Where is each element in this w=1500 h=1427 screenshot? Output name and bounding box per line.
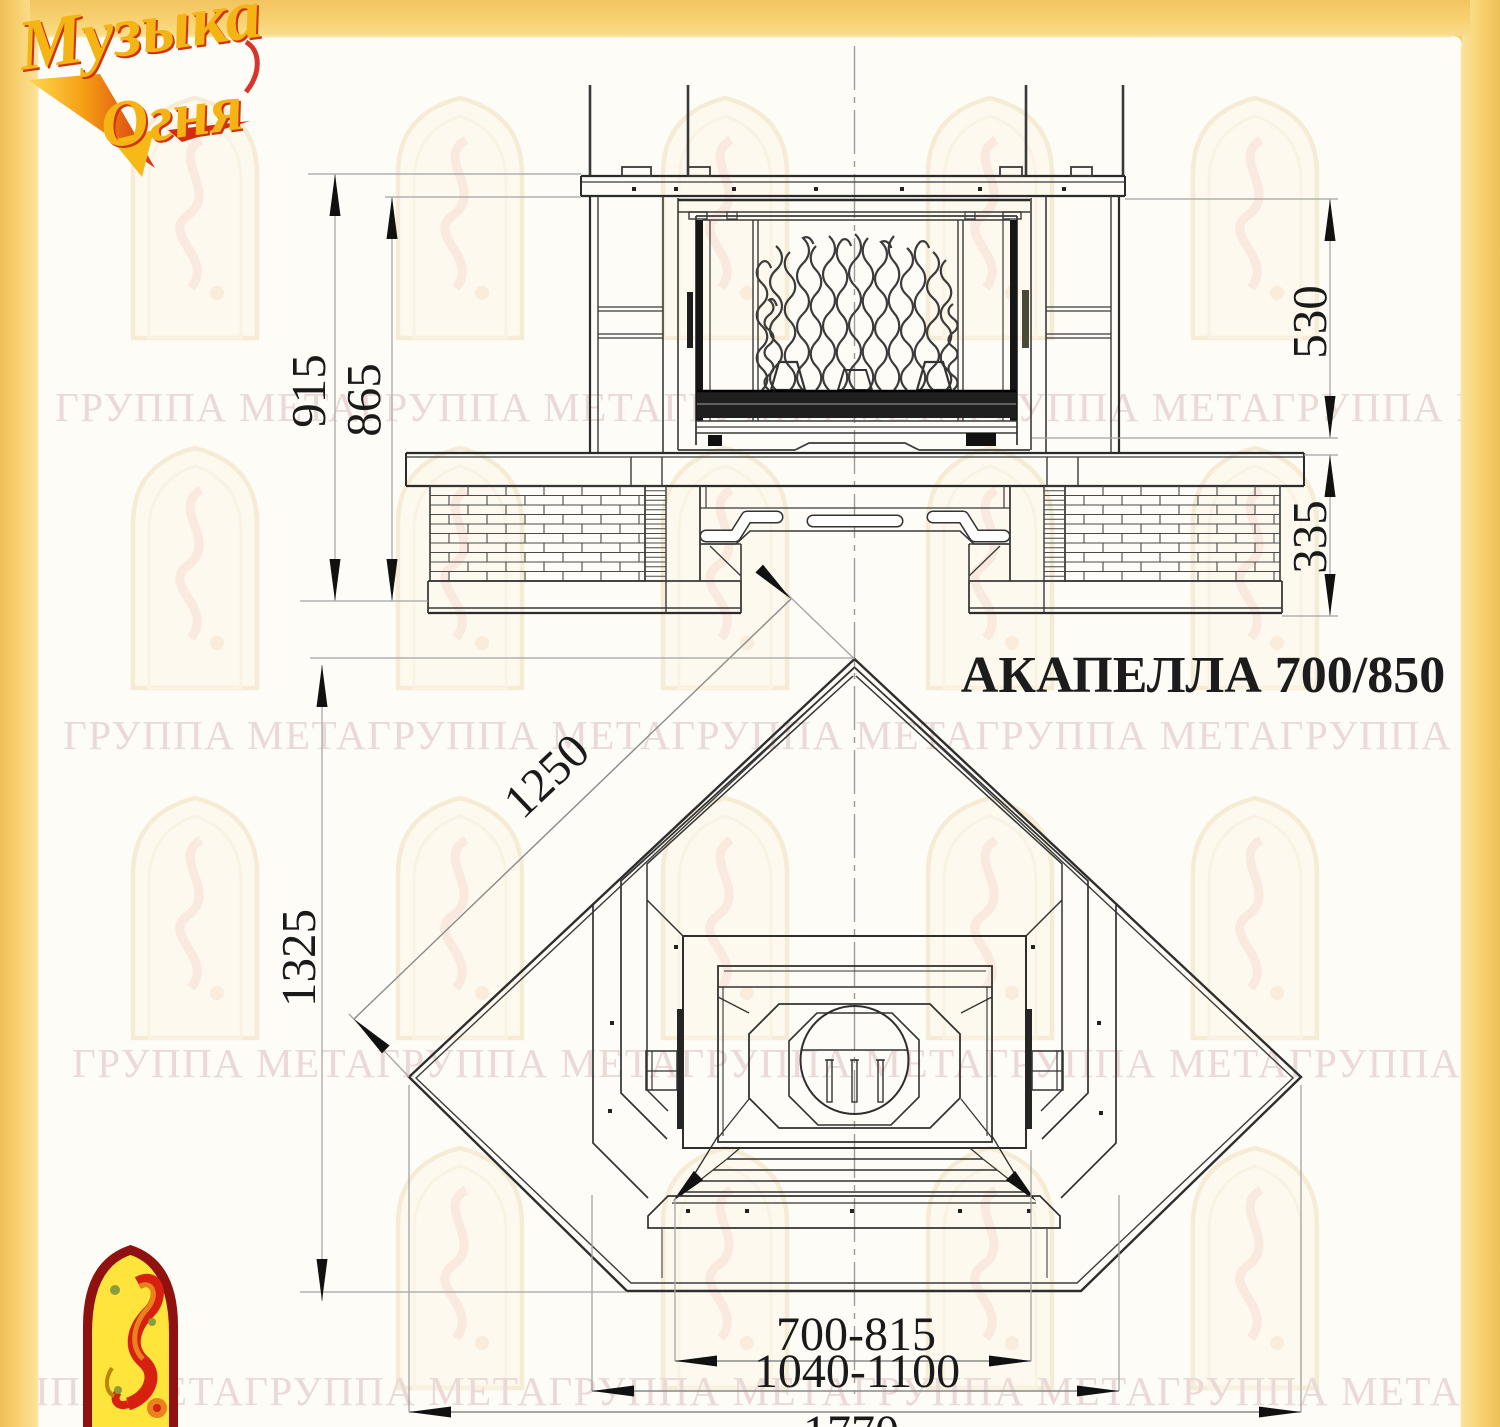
- svg-text:1325: 1325: [271, 909, 326, 1007]
- svg-text:865: 865: [336, 363, 391, 437]
- svg-text:АКАПЕЛЛА 700/850: АКАПЕЛЛА 700/850: [961, 647, 1445, 704]
- svg-text:530: 530: [1282, 285, 1337, 359]
- svg-text:915: 915: [281, 354, 336, 428]
- svg-text:1770: 1770: [803, 1406, 899, 1427]
- svg-text:1040-1100: 1040-1100: [754, 1345, 960, 1398]
- svg-text:335: 335: [1282, 500, 1337, 574]
